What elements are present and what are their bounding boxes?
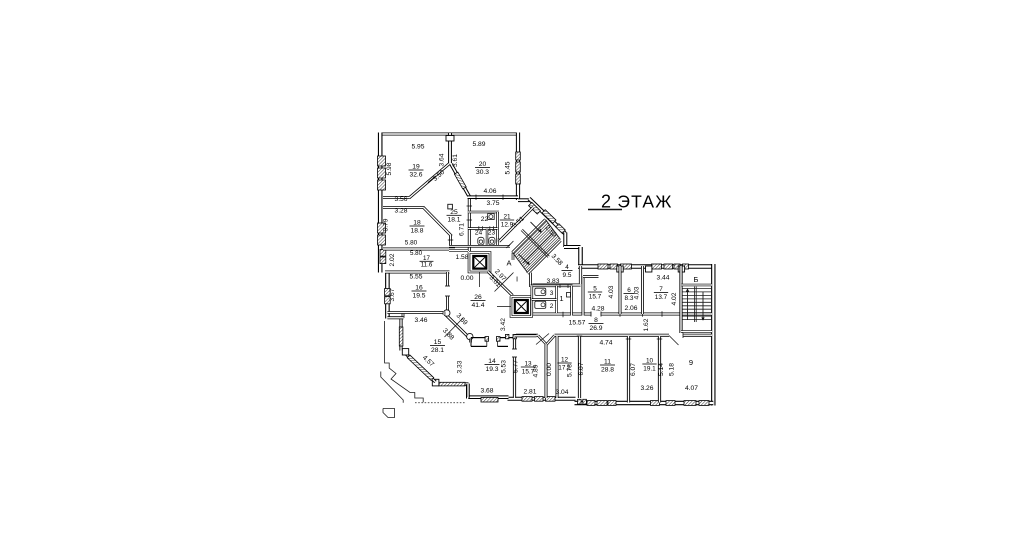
svg-text:5.80: 5.80 bbox=[405, 240, 418, 247]
svg-text:8: 8 bbox=[594, 317, 598, 324]
svg-text:0.00: 0.00 bbox=[546, 363, 553, 376]
svg-text:9: 9 bbox=[689, 358, 693, 367]
svg-text:3.67: 3.67 bbox=[389, 288, 396, 301]
svg-text:16: 16 bbox=[415, 285, 423, 292]
svg-text:26.9: 26.9 bbox=[589, 325, 602, 332]
svg-text:12: 12 bbox=[561, 357, 569, 364]
svg-text:5.18: 5.18 bbox=[669, 363, 676, 376]
svg-text:5.45: 5.45 bbox=[505, 161, 512, 174]
svg-text:14: 14 bbox=[488, 358, 496, 365]
svg-text:41.4: 41.4 bbox=[471, 302, 484, 309]
svg-text:3.33: 3.33 bbox=[457, 360, 464, 373]
svg-text:3.68: 3.68 bbox=[480, 388, 493, 395]
svg-text:5.89: 5.89 bbox=[472, 141, 485, 148]
svg-text:4.89: 4.89 bbox=[533, 364, 540, 377]
svg-text:5.14: 5.14 bbox=[658, 363, 665, 376]
svg-text:2.81: 2.81 bbox=[523, 389, 536, 396]
svg-text:19: 19 bbox=[412, 164, 420, 171]
svg-text:4.02: 4.02 bbox=[671, 292, 678, 305]
svg-text:24: 24 bbox=[475, 230, 483, 237]
svg-text:2.02: 2.02 bbox=[389, 253, 396, 266]
svg-text:9.5: 9.5 bbox=[563, 272, 572, 279]
svg-text:8.3: 8.3 bbox=[625, 295, 634, 302]
svg-text:5.80: 5.80 bbox=[410, 250, 423, 257]
svg-text:3.83: 3.83 bbox=[546, 278, 559, 285]
svg-text:5.53: 5.53 bbox=[501, 360, 508, 373]
svg-text:28.1: 28.1 bbox=[431, 347, 444, 354]
svg-text:0.00: 0.00 bbox=[460, 275, 473, 282]
svg-text:5.55: 5.55 bbox=[409, 274, 422, 281]
svg-text:18.8: 18.8 bbox=[410, 227, 423, 234]
svg-text:18.1: 18.1 bbox=[447, 217, 460, 224]
svg-text:3.28: 3.28 bbox=[394, 208, 407, 215]
svg-text:4.03: 4.03 bbox=[608, 285, 615, 298]
svg-text:5.98: 5.98 bbox=[386, 162, 393, 175]
svg-text:6: 6 bbox=[627, 287, 631, 294]
svg-text:10: 10 bbox=[646, 358, 654, 365]
svg-text:4.07: 4.07 bbox=[685, 385, 698, 392]
svg-text:4.28: 4.28 bbox=[591, 306, 604, 313]
svg-text:3.44: 3.44 bbox=[656, 275, 669, 282]
svg-text:3.42: 3.42 bbox=[500, 318, 507, 331]
svg-text:4.06: 4.06 bbox=[483, 188, 496, 195]
svg-text:32.6: 32.6 bbox=[409, 171, 422, 178]
svg-text:I: I bbox=[516, 275, 518, 284]
svg-text:3.64: 3.64 bbox=[439, 153, 446, 166]
svg-text:Б: Б bbox=[694, 275, 699, 284]
svg-text:18: 18 bbox=[413, 220, 421, 227]
svg-text:3.75: 3.75 bbox=[486, 200, 499, 207]
svg-text:15.7: 15.7 bbox=[589, 293, 602, 300]
svg-text:3: 3 bbox=[550, 290, 554, 297]
svg-text:5: 5 bbox=[593, 286, 597, 293]
svg-text:11.6: 11.6 bbox=[421, 262, 433, 269]
svg-text:4.74: 4.74 bbox=[599, 340, 612, 347]
svg-text:1.62: 1.62 bbox=[643, 318, 650, 331]
svg-text:3.79: 3.79 bbox=[383, 218, 390, 231]
svg-text:6.07: 6.07 bbox=[630, 363, 637, 376]
svg-text:A: A bbox=[506, 259, 511, 268]
svg-text:ЭТАЖ: ЭТАЖ bbox=[617, 192, 672, 212]
svg-text:15.57: 15.57 bbox=[569, 320, 586, 327]
svg-text:3.04: 3.04 bbox=[555, 389, 568, 396]
svg-text:15: 15 bbox=[434, 339, 442, 346]
svg-text:22: 22 bbox=[481, 216, 489, 223]
svg-text:19.5: 19.5 bbox=[412, 292, 425, 299]
svg-text:3.56: 3.56 bbox=[394, 196, 407, 203]
svg-text:23: 23 bbox=[488, 230, 496, 237]
svg-text:2: 2 bbox=[550, 303, 554, 310]
svg-text:3.61: 3.61 bbox=[452, 154, 459, 167]
svg-text:3.46: 3.46 bbox=[414, 317, 427, 324]
svg-text:6.71: 6.71 bbox=[459, 223, 466, 236]
svg-text:19.1: 19.1 bbox=[643, 365, 656, 372]
svg-text:6.07: 6.07 bbox=[578, 362, 585, 375]
svg-text:21: 21 bbox=[503, 214, 511, 221]
svg-text:25: 25 bbox=[450, 209, 458, 216]
svg-text:5.78: 5.78 bbox=[567, 364, 574, 377]
svg-text:13: 13 bbox=[524, 361, 532, 368]
svg-text:30.3: 30.3 bbox=[476, 169, 489, 176]
svg-text:3.26: 3.26 bbox=[640, 385, 653, 392]
svg-text:2: 2 bbox=[601, 192, 611, 212]
svg-text:2.06: 2.06 bbox=[624, 305, 637, 312]
svg-text:19.3: 19.3 bbox=[485, 366, 498, 373]
svg-text:1.58: 1.58 bbox=[455, 254, 468, 261]
svg-text:4: 4 bbox=[565, 264, 569, 271]
svg-text:5.95: 5.95 bbox=[411, 144, 424, 151]
svg-text:13.7: 13.7 bbox=[655, 294, 668, 301]
svg-text:28.8: 28.8 bbox=[601, 366, 614, 373]
svg-text:5.77: 5.77 bbox=[513, 360, 520, 373]
svg-text:11: 11 bbox=[604, 359, 611, 366]
svg-text:1: 1 bbox=[559, 294, 563, 303]
svg-text:26: 26 bbox=[474, 294, 482, 301]
svg-text:20: 20 bbox=[479, 161, 487, 168]
svg-text:4.03: 4.03 bbox=[634, 286, 641, 299]
svg-text:7: 7 bbox=[659, 286, 663, 293]
